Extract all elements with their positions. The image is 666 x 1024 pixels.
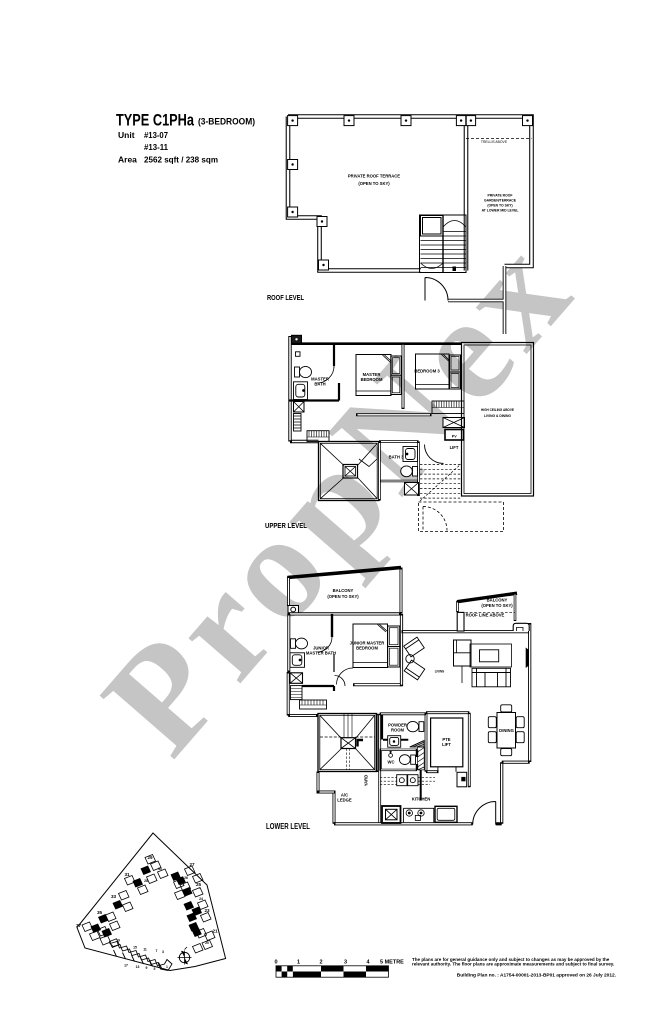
svg-text:BATH: BATH [314, 382, 325, 387]
svg-text:ROOF LINE ABOVE: ROOF LINE ABOVE [466, 613, 505, 618]
svg-text:#13-11: #13-11 [144, 142, 168, 152]
svg-text:31: 31 [124, 872, 130, 877]
svg-text:29: 29 [147, 855, 153, 860]
svg-text:22: 22 [193, 924, 197, 928]
svg-text:33: 33 [111, 894, 117, 899]
svg-text:(OPEN TO SKY): (OPEN TO SKY) [327, 594, 359, 599]
svg-text:2562 sqft / 238 sqm: 2562 sqft / 238 sqm [144, 155, 218, 165]
svg-text:relevant authority. The floor: relevant authority. The floor plans are … [412, 962, 614, 967]
svg-text:PRIVATE ROOF: PRIVATE ROOF [488, 194, 513, 198]
svg-text:BEDROOM 3: BEDROOM 3 [414, 369, 440, 374]
svg-text:1: 1 [166, 965, 168, 969]
svg-text:21: 21 [212, 929, 218, 934]
svg-text:17: 17 [124, 964, 128, 968]
svg-text:24: 24 [199, 897, 203, 901]
svg-text:KITCHEN: KITCHEN [412, 797, 431, 802]
svg-text:1: 1 [297, 960, 300, 966]
svg-text:28: 28 [144, 879, 148, 883]
svg-text:UPPER LEVEL: UPPER LEVEL [265, 521, 307, 530]
svg-text:TRELLIS ABOVE: TRELLIS ABOVE [481, 140, 508, 144]
svg-text:9: 9 [146, 966, 148, 970]
svg-text:BATH 3: BATH 3 [389, 455, 404, 460]
svg-text:26: 26 [184, 876, 188, 880]
svg-text:LIFT: LIFT [450, 445, 459, 450]
svg-text:(OPEN TO SKY): (OPEN TO SKY) [487, 204, 512, 208]
svg-text:37: 37 [76, 923, 82, 928]
svg-text:3: 3 [344, 960, 347, 966]
svg-text:LIFT: LIFT [442, 742, 451, 747]
svg-text:AT LOWER MID LEVEL: AT LOWER MID LEVEL [482, 209, 519, 213]
svg-text:25: 25 [196, 882, 202, 887]
svg-text:(3-BEDROOM): (3-BEDROOM) [198, 117, 255, 128]
svg-text:Building Plan no. : A1754-0000: Building Plan no. : A1754-00001-2013-BP0… [457, 973, 616, 979]
svg-text:Area: Area [118, 155, 137, 165]
svg-text:GARDEN/TERRACE: GARDEN/TERRACE [484, 199, 517, 203]
svg-text:5 METRE: 5 METRE [380, 960, 404, 966]
svg-text:0: 0 [274, 960, 277, 966]
svg-text:27: 27 [189, 862, 195, 867]
svg-text:19: 19 [116, 939, 120, 943]
svg-text:WC: WC [388, 760, 395, 765]
svg-text:PV: PV [452, 434, 457, 438]
svg-text:3: 3 [162, 950, 164, 954]
svg-text:2: 2 [319, 960, 322, 966]
svg-text:20: 20 [205, 941, 209, 945]
svg-text:LEDGE: LEDGE [337, 798, 352, 803]
svg-text:ROOF LEVEL: ROOF LEVEL [267, 293, 304, 302]
svg-text:LIVING: LIVING [435, 669, 445, 673]
svg-text:(OPEN TO SKY): (OPEN TO SKY) [481, 603, 513, 608]
svg-text:BEDROOM: BEDROOM [356, 646, 378, 651]
svg-text:13: 13 [136, 965, 140, 969]
svg-text:TYPE C1PHa: TYPE C1PHa [116, 111, 194, 130]
svg-text:5: 5 [154, 967, 156, 971]
svg-text:30: 30 [158, 867, 162, 871]
svg-text:LIVING & DINING: LIVING & DINING [484, 414, 511, 418]
svg-text:BALCONY: BALCONY [487, 598, 508, 603]
svg-text:BEDROOM: BEDROOM [361, 377, 383, 382]
svg-text:35: 35 [97, 910, 103, 915]
svg-text:Unit: Unit [118, 130, 135, 140]
svg-text:LOWER LEVEL: LOWER LEVEL [266, 822, 310, 831]
svg-text:7: 7 [156, 949, 158, 953]
svg-text:15: 15 [133, 946, 137, 950]
svg-text:(OPEN TO SKY): (OPEN TO SKY) [358, 181, 390, 186]
svg-text:DINING: DINING [499, 728, 514, 733]
svg-text:ROOM: ROOM [391, 728, 405, 733]
svg-text:YARD: YARD [364, 775, 369, 786]
svg-text:BALCONY: BALCONY [333, 588, 354, 593]
svg-text:23: 23 [204, 908, 210, 913]
svg-text:PRIVATE ROOF TERRACE: PRIVATE ROOF TERRACE [348, 174, 400, 179]
svg-text:HIGH CEILING ABOVE: HIGH CEILING ABOVE [481, 408, 515, 412]
svg-text:#13-07: #13-07 [144, 130, 168, 140]
svg-text:11: 11 [143, 948, 147, 952]
